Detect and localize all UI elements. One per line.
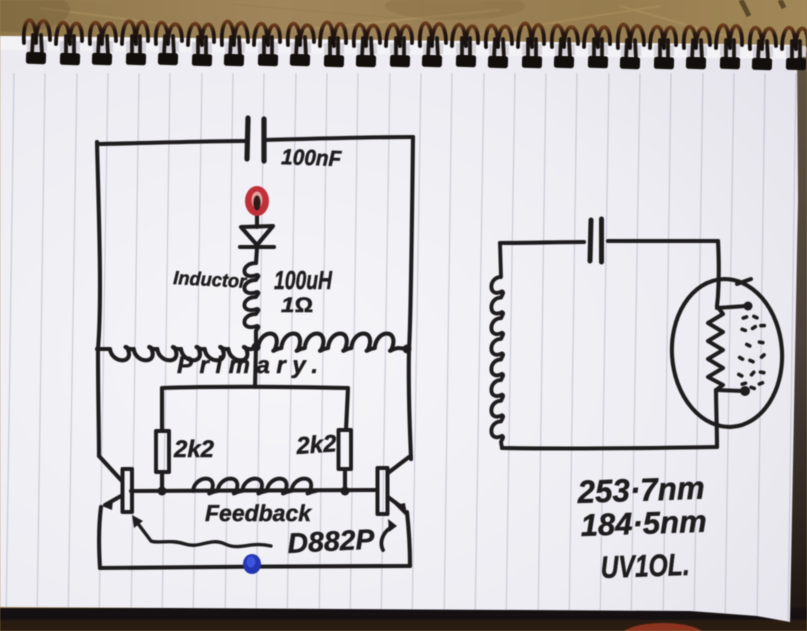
svg-text:Feedback: Feedback	[205, 500, 312, 526]
svg-text:Inductor: Inductor	[173, 268, 249, 293]
svg-text:1Ω: 1Ω	[281, 294, 313, 317]
svg-text:184·5nm: 184·5nm	[580, 504, 707, 543]
svg-text:2k2: 2k2	[173, 436, 215, 463]
svg-text:Primary.: Primary.	[177, 352, 323, 379]
svg-text:100nF: 100nF	[281, 144, 342, 171]
svg-text:D882P: D882P	[287, 523, 376, 559]
svg-text:2k2: 2k2	[295, 430, 338, 460]
svg-text:100uH: 100uH	[274, 265, 333, 295]
svg-text:UV1OL.: UV1OL.	[600, 547, 690, 585]
